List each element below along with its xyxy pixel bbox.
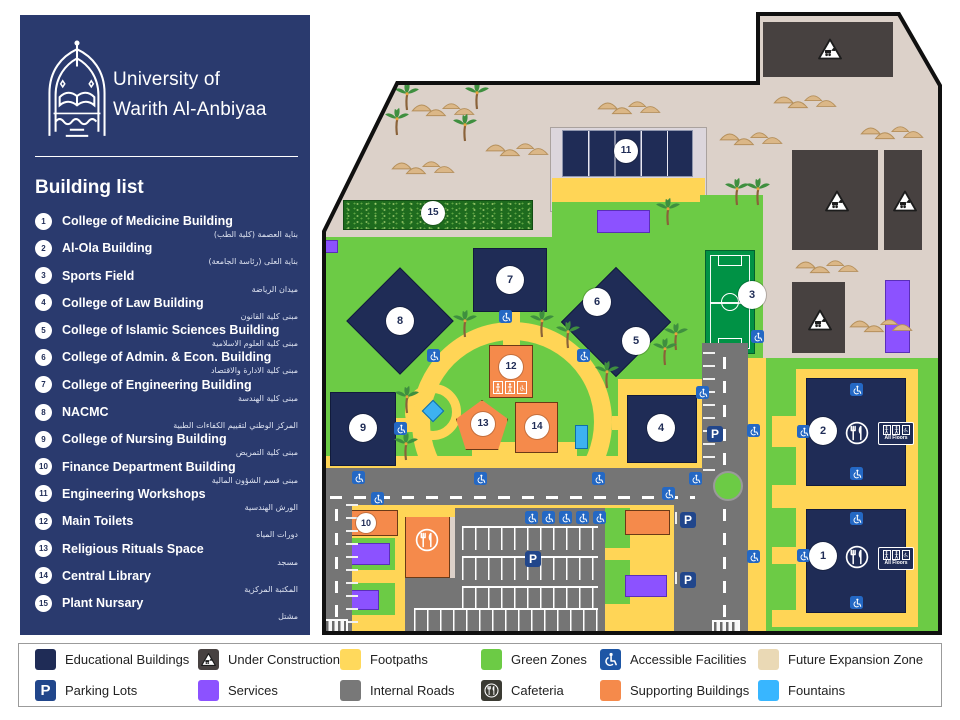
map-marker-7: 7	[496, 266, 524, 294]
map-marker-9: 9	[349, 414, 377, 442]
wheelchair-icon	[559, 511, 572, 524]
wheelchair-icon	[850, 467, 863, 480]
cafeteria-icon	[415, 528, 439, 552]
legend-item: Supporting Buildings	[600, 680, 758, 701]
palm-tree-icon	[529, 309, 555, 339]
legend-item: Future Expansion Zone	[758, 649, 941, 670]
person-icon	[883, 425, 891, 435]
wheelchair-icon	[747, 550, 760, 563]
building-number-badge: 15	[35, 595, 52, 612]
legend-label: Fountains	[788, 683, 845, 698]
map-marker-15: 15	[421, 201, 445, 225]
building-number-badge: 4	[35, 294, 52, 311]
building-list-item: 5College of Islamic Sciences Buildingمبن…	[35, 322, 298, 349]
map-marker-4: 4	[647, 414, 675, 442]
legend-label: Under Construction	[228, 652, 340, 667]
wheelchair-icon	[747, 424, 760, 437]
under-construction-icon	[893, 190, 917, 212]
all-floors-label: All Floors	[884, 435, 907, 442]
legend-item: Internal Roads	[340, 680, 481, 701]
wheelchair-icon	[662, 487, 675, 500]
building-name: Sports Field	[62, 269, 134, 283]
building-name-arabic: مبنى كلية الهندسة	[35, 394, 298, 404]
legend-item: P Parking Lots	[35, 680, 198, 701]
parking-icon: P	[707, 426, 723, 442]
building-list-item: 1College of Medicine Buildingبناية العصم…	[35, 213, 298, 240]
parking-stalls-row	[414, 608, 598, 632]
legend-label: Supporting Buildings	[630, 683, 749, 698]
palm-tree-icon	[655, 197, 681, 227]
building-list-item: 14Central Libraryالمكتبة المركزية	[35, 568, 298, 595]
page-title: University of Warith Al-Anbiyaa	[113, 65, 267, 125]
wheelchair-icon	[577, 349, 590, 362]
building-name: College of Law Building	[62, 296, 204, 310]
wheelchair-icon	[902, 425, 910, 435]
under-construction-icon	[825, 190, 849, 212]
wheelchair-icon	[474, 472, 487, 485]
building-name: Plant Nursary	[62, 596, 143, 610]
legend-label: Services	[228, 683, 278, 698]
building-list-item: 9College of Nursing Buildingمبنى كلية ال…	[35, 431, 298, 458]
legend-item: Cafeteria	[481, 680, 600, 701]
sand-dunes-icon	[593, 90, 665, 116]
wheelchair-icon	[499, 310, 512, 323]
title-line2: Warith Al-Anbiyaa	[113, 95, 267, 125]
legend-label: Educational Buildings	[65, 652, 189, 667]
footpath	[552, 178, 705, 202]
person-icon	[892, 425, 900, 435]
building-list-item: 15Plant Nursaryمشتل	[35, 595, 298, 622]
sidebar: University of Warith Al-Anbiyaa Building…	[20, 15, 310, 635]
road-centerline	[723, 357, 726, 475]
wheelchair-icon	[542, 511, 555, 524]
roundabout	[713, 471, 743, 501]
sand-dunes-icon	[791, 249, 863, 275]
wheelchair-icon	[427, 349, 440, 362]
person-icon	[892, 550, 900, 560]
green-zone	[766, 363, 796, 416]
parking-icon: P	[525, 551, 541, 567]
building-name: College of Admin. & Econ. Building	[62, 350, 271, 364]
map-marker-5: 5	[622, 327, 650, 355]
building-number-badge: 3	[35, 267, 52, 284]
wheelchair-icon	[850, 383, 863, 396]
road-centerline	[335, 509, 338, 627]
building-name-arabic: ميدان الرياضة	[35, 285, 298, 295]
legend-label: Future Expansion Zone	[788, 652, 923, 667]
legend-label: Parking Lots	[65, 683, 137, 698]
footpaths-swatch	[340, 649, 361, 670]
building-number-badge: 8	[35, 404, 52, 421]
building-list-item: 10Finance Department Buildingمبنى قسم ال…	[35, 459, 298, 486]
palm-tree-icon	[384, 107, 410, 137]
building-name: College of Islamic Sciences Building	[62, 323, 279, 337]
legend-label: Internal Roads	[370, 683, 455, 698]
under-construction-icon	[808, 309, 832, 331]
all-floors-sign: All Floors	[878, 547, 914, 570]
divider	[35, 156, 298, 157]
parking-icon: P	[35, 680, 56, 701]
wheelchair-icon	[600, 649, 621, 670]
building-name: College of Medicine Building	[62, 214, 233, 228]
map-marker-8: 8	[386, 307, 414, 335]
building-list-item: 8NACMCالمركز الوطني لتقييم الكفاءات الطب…	[35, 404, 298, 431]
campus-map: P P P All Floors All Floors	[322, 12, 942, 635]
sand-dunes-icon	[481, 132, 553, 158]
road-centerline	[330, 496, 695, 499]
title-line1: University of	[113, 65, 267, 95]
wheelchair-icon	[352, 471, 365, 484]
wheelchair-icon	[593, 511, 606, 524]
fountains-swatch	[758, 680, 779, 701]
field-goal-box	[718, 255, 742, 266]
palm-tree-icon	[594, 360, 620, 390]
building-name: Finance Department Building	[62, 460, 236, 474]
building-list-item: 11Engineering Workshopsالورش الهندسية	[35, 486, 298, 513]
sand-dunes-icon	[387, 150, 459, 176]
building-name: Religious Rituals Space	[62, 542, 204, 556]
wheelchair-icon	[696, 386, 709, 399]
building-number-badge: 10	[35, 458, 52, 475]
palm-tree-icon	[652, 337, 678, 367]
building-list-item: 4College of Law Buildingمبنى كلية القانو…	[35, 295, 298, 322]
building-name: NACMC	[62, 405, 109, 419]
map-marker-11: 11	[614, 139, 638, 163]
services-building	[625, 575, 667, 597]
building-name: Central Library	[62, 569, 151, 583]
gate-icon	[712, 620, 740, 635]
building-name-arabic: مبنى قسم الشؤون المالية	[35, 476, 298, 486]
legend-label: Green Zones	[511, 652, 587, 667]
educational-buildings-swatch	[35, 649, 56, 670]
wheelchair-icon	[525, 511, 538, 524]
building-list-item: 13Religious Rituals Spaceمسجد	[35, 541, 298, 568]
toilet-sign	[493, 381, 527, 394]
person-icon	[505, 381, 515, 394]
building-name: College of Engineering Building	[62, 378, 252, 392]
building-number-badge: 9	[35, 431, 52, 448]
all-floors-label: All Floors	[884, 560, 907, 567]
building-name: Main Toilets	[62, 514, 133, 528]
palm-tree-icon	[393, 432, 419, 462]
sand-dunes-icon	[715, 121, 787, 147]
building-number-badge: 14	[35, 567, 52, 584]
building-list-item: 2Al-Ola Buildingبناية العلى (رئاسة الجام…	[35, 240, 298, 267]
building-name-arabic: بناية العصمة (كلية الطب)	[35, 230, 298, 240]
footpath	[748, 358, 766, 635]
building-name-arabic: مبنى كلية التمريض	[35, 448, 298, 458]
person-icon	[493, 381, 503, 394]
wheelchair-icon	[902, 550, 910, 560]
supporting-buildings-swatch	[600, 680, 621, 701]
green-zone	[766, 508, 796, 547]
building-name: Engineering Workshops	[62, 487, 206, 501]
wheelchair-icon	[371, 492, 384, 505]
sand-dunes-icon	[856, 115, 928, 141]
wheelchair-icon	[576, 511, 589, 524]
cafeteria-icon	[845, 545, 869, 569]
parking-stalls-row	[462, 586, 598, 610]
palm-tree-icon	[745, 177, 771, 207]
cafeteria-icon	[845, 421, 869, 445]
person-icon	[883, 550, 891, 560]
palm-tree-icon	[394, 385, 420, 415]
building-name-arabic: مبنى كلية العلوم الاسلامية	[35, 339, 298, 349]
building-name-arabic: بناية العلى (رئاسة الجامعة)	[35, 257, 298, 267]
accessible-parking-row	[525, 511, 606, 524]
map-marker-6: 6	[583, 288, 611, 316]
wheelchair-icon	[850, 512, 863, 525]
building-name-arabic: المركز الوطني لتقييم الكفاءات الطبية	[35, 421, 298, 431]
university-logo-icon	[40, 40, 114, 142]
building-number-badge: 5	[35, 322, 52, 339]
map-marker-13: 13	[471, 412, 495, 436]
wheelchair-icon	[517, 381, 527, 394]
under-construction-icon	[818, 38, 842, 60]
legend-item: Accessible Facilities	[600, 649, 758, 670]
legend-label: Cafeteria	[511, 683, 564, 698]
all-floors-sign: All Floors	[878, 422, 914, 445]
internal-roads-swatch	[340, 680, 361, 701]
map-marker-2: 2	[809, 417, 837, 445]
wheelchair-icon	[751, 330, 764, 343]
roadside-parking-stalls	[703, 352, 715, 478]
legend-item: Fountains	[758, 680, 941, 701]
legend-label: Footpaths	[370, 652, 428, 667]
building-list-heading: Building list	[35, 177, 144, 199]
map-marker-14: 14	[525, 415, 549, 439]
parking-stalls-row	[462, 526, 598, 550]
under-construction-icon	[198, 649, 219, 670]
legend-label: Accessible Facilities	[630, 652, 746, 667]
map-marker-12: 12	[499, 355, 523, 379]
building-name: Al-Ola Building	[62, 241, 152, 255]
building-name: College of Nursing Building	[62, 432, 227, 446]
parking-icon: P	[680, 512, 696, 528]
building-number-badge: 11	[35, 485, 52, 502]
building-list-item: 3Sports Fieldميدان الرياضة	[35, 268, 298, 295]
building-list-item: 7College of Engineering Buildingمبنى كلي…	[35, 377, 298, 404]
building-number-badge: 12	[35, 513, 52, 530]
building-number-badge: 7	[35, 376, 52, 393]
wheelchair-icon	[592, 472, 605, 485]
building-name-arabic: المكتبة المركزية	[35, 585, 298, 595]
building-name-arabic: مشتل	[35, 612, 298, 622]
future-expansion-swatch	[758, 649, 779, 670]
services-building	[324, 240, 338, 253]
map-marker-10: 10	[356, 513, 376, 533]
legend-item: Services	[198, 680, 340, 701]
parking-icon: P	[680, 572, 696, 588]
gate-icon	[324, 619, 348, 635]
map-marker-1: 1	[809, 542, 837, 570]
building-number-badge: 1	[35, 213, 52, 230]
building-name-arabic: دورات المياه	[35, 530, 298, 540]
building-list-item: 6College of Admin. & Econ. Buildingمبنى …	[35, 349, 298, 376]
legend-item: Green Zones	[481, 649, 600, 670]
building-name-arabic: مسجد	[35, 558, 298, 568]
sand-dunes-icon	[845, 308, 917, 334]
wheelchair-icon	[689, 472, 702, 485]
sand-dunes-icon	[769, 84, 841, 110]
green-zones-swatch	[481, 649, 502, 670]
green-zone	[766, 564, 796, 610]
building-name-arabic: مبنى كلية الادارة والاقتصاد	[35, 366, 298, 376]
services-swatch	[198, 680, 219, 701]
building-number-badge: 13	[35, 540, 52, 557]
palm-tree-icon	[464, 81, 490, 111]
building-number-badge: 2	[35, 240, 52, 257]
road-centerline	[723, 509, 726, 629]
map-legend: Educational Buildings Under Construction…	[18, 643, 942, 707]
legend-item: Footpaths	[340, 649, 481, 670]
legend-item: Educational Buildings	[35, 649, 198, 670]
map-marker-3: 3	[738, 281, 766, 309]
building-name-arabic: الورش الهندسية	[35, 503, 298, 513]
services-building	[597, 210, 650, 233]
legend-item: Under Construction	[198, 649, 340, 670]
building-list-item: 12Main Toiletsدورات المياه	[35, 513, 298, 540]
building-list: 1College of Medicine Buildingبناية العصم…	[35, 213, 298, 622]
palm-tree-icon	[452, 113, 478, 143]
wheelchair-icon	[394, 422, 407, 435]
field-center-circle	[721, 293, 739, 311]
supporting-building	[625, 510, 670, 535]
fountain	[575, 425, 588, 449]
green-zone	[766, 447, 796, 485]
wheelchair-icon	[850, 596, 863, 609]
building-name-arabic: مبنى كلية القانون	[35, 312, 298, 322]
palm-tree-icon	[452, 309, 478, 339]
palm-tree-icon	[555, 320, 581, 350]
building-number-badge: 6	[35, 349, 52, 366]
cafeteria-icon	[481, 680, 502, 701]
